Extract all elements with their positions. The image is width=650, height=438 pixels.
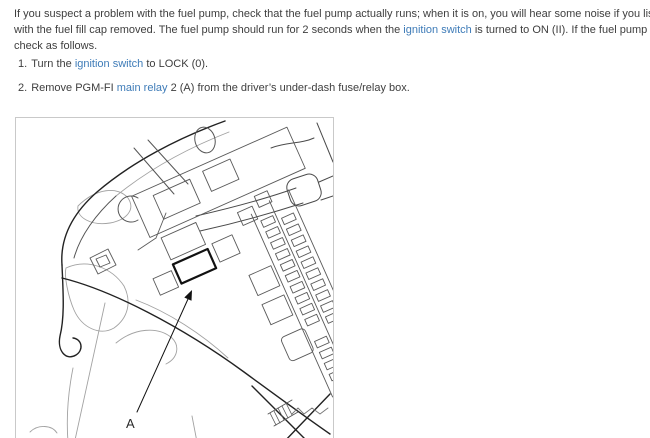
intro-text: with the fuel fill cap removed. The fuel… [14, 24, 403, 36]
callout-label-a: A [126, 416, 135, 431]
intro-line-2: with the fuel fill cap removed. The fuel… [14, 22, 650, 38]
fuse-grid [119, 127, 333, 438]
step-number: 2. [18, 82, 27, 94]
intro-paragraph: If you suspect a problem with the fuel p… [14, 6, 650, 54]
main-relay-link[interactable]: main relay [117, 82, 168, 94]
intro-text: If you suspect a problem with the fuel p… [14, 8, 650, 20]
intro-text: check as follows. [14, 40, 97, 52]
intro-line-1: If you suspect a problem with the fuel p… [14, 6, 650, 22]
manual-page: If you suspect a problem with the fuel p… [0, 0, 650, 438]
intro-text: is turned to ON (II). If the fuel pump d… [472, 24, 650, 36]
step-text: to LOCK (0). [143, 58, 208, 70]
step-text: Remove PGM-FI [31, 82, 117, 94]
step-text: 2 (A) from the driver’s under-dash fuse/… [168, 82, 410, 94]
step-number: 1. [18, 58, 27, 70]
ignition-switch-link[interactable]: ignition switch [403, 24, 471, 36]
intro-line-3: check as follows. [14, 38, 650, 54]
panel-openings [74, 125, 218, 258]
ignition-switch-link[interactable]: ignition switch [75, 58, 143, 70]
callout-arrow [137, 290, 192, 412]
fuse-relay-box-figure: A [15, 117, 334, 438]
step-text: Turn the [31, 58, 75, 70]
pgm-fi-main-relay-2-highlight [173, 249, 216, 284]
harness-connector [196, 123, 333, 231]
dash-panel-curves [30, 132, 229, 438]
fuse-relay-box-diagram: A [16, 118, 333, 438]
step-2: 2.Remove PGM-FI main relay 2 (A) from th… [18, 82, 410, 94]
bottom-right-structure [252, 386, 330, 438]
step-1: 1.Turn the ignition switch to LOCK (0). [18, 58, 208, 70]
